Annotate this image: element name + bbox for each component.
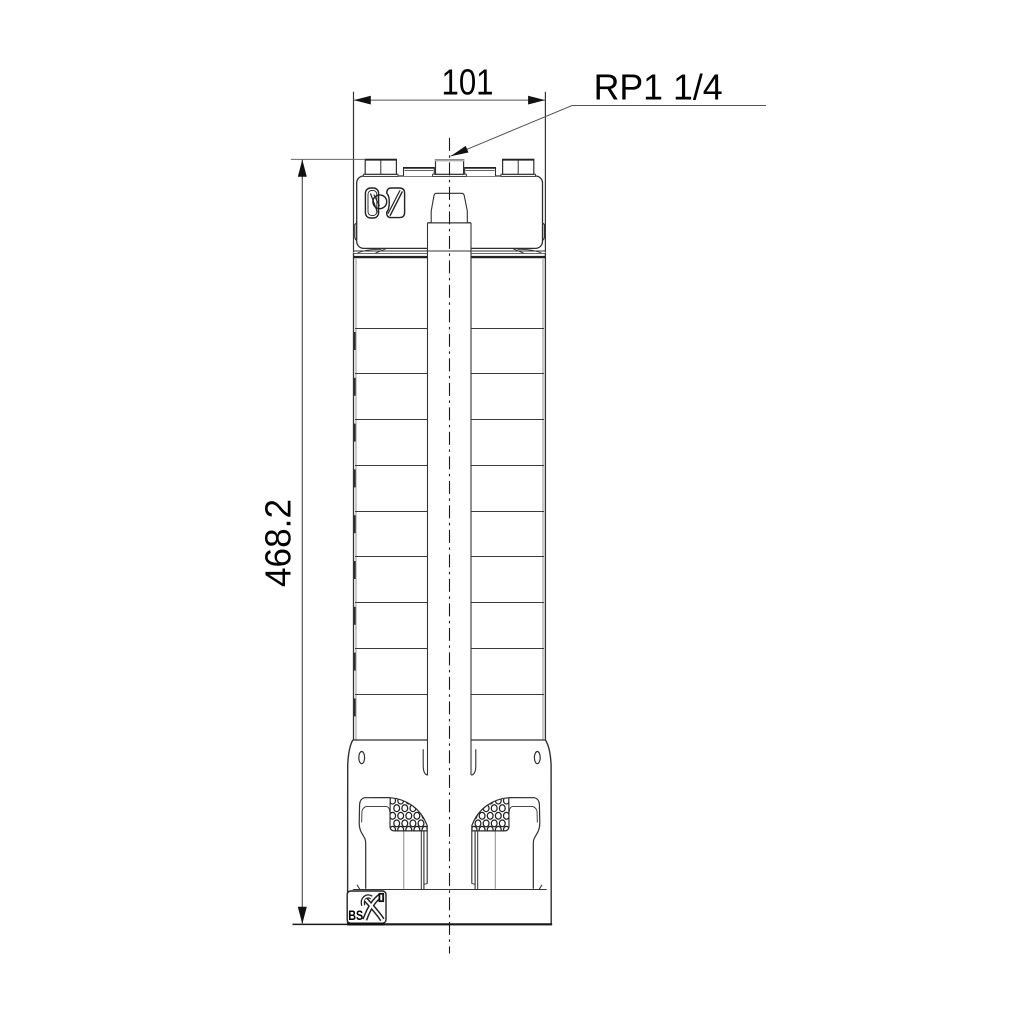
svg-text:101: 101: [442, 61, 494, 102]
svg-text:RP1 1/4: RP1 1/4: [594, 67, 723, 108]
svg-text:468.2: 468.2: [257, 499, 298, 587]
svg-text:BS: BS: [348, 908, 363, 923]
